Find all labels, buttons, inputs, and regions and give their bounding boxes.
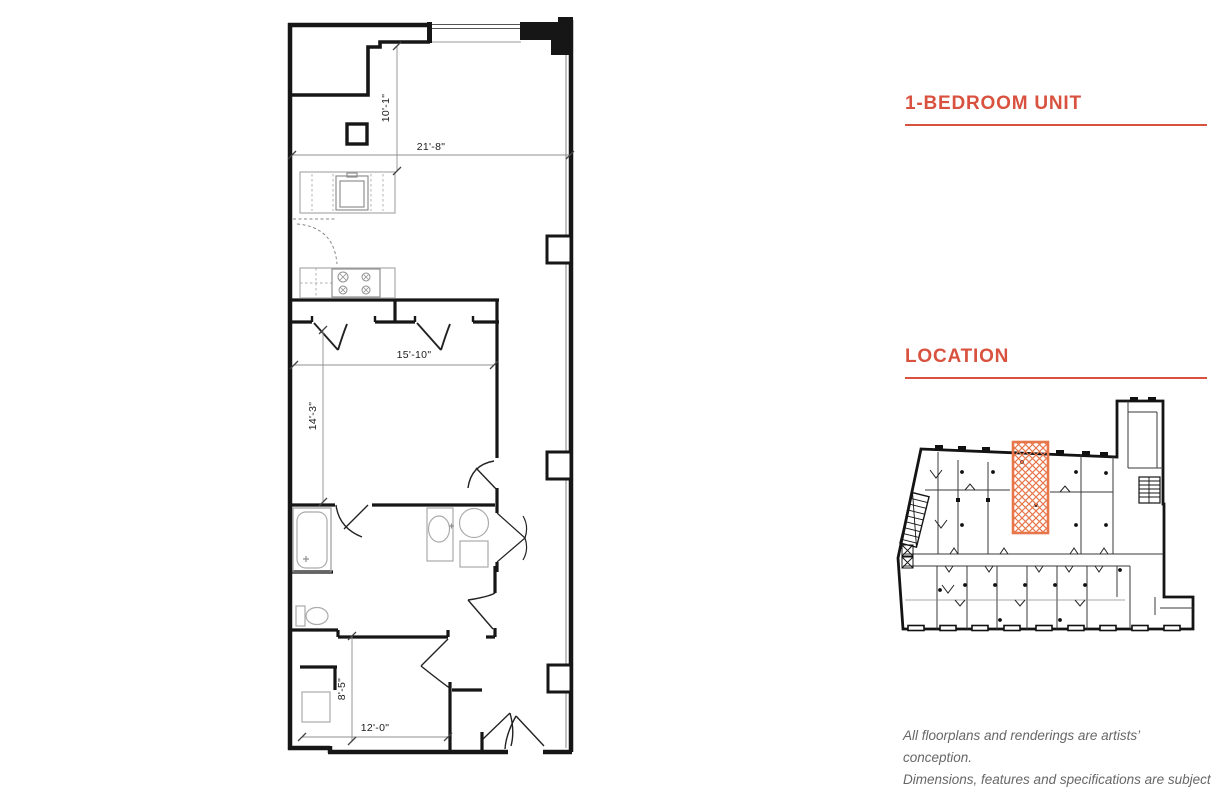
fixtures <box>293 172 489 722</box>
bathroom-door <box>336 505 368 537</box>
den-door <box>421 639 451 689</box>
entry-closet-door <box>483 713 513 746</box>
closet-bifold-left <box>314 323 347 350</box>
bedroom-door <box>468 461 497 490</box>
dryer <box>460 541 488 567</box>
unit-floorplan-drawing: 21'-8" 10'-1" 15'-10" 14'-3" 8'-5" 12'-0… <box>283 12 587 764</box>
toilet <box>296 606 305 626</box>
dimension-lines: 21'-8" 10'-1" 15'-10" 14'-3" 8'-5" 12'-0… <box>288 42 574 745</box>
dimension-label: 8'-5" <box>336 678 348 700</box>
disclaimer-text: All floorplans and renderings are artist… <box>903 725 1211 794</box>
hall-door <box>468 593 495 629</box>
kitchen-counter <box>300 268 395 298</box>
disclaimer-line: Dimensions, features and specifications … <box>903 769 1211 791</box>
bathroom-sink <box>429 516 450 542</box>
pantry-door <box>293 219 337 264</box>
desk <box>302 692 330 722</box>
interior-walls <box>288 124 571 750</box>
disclaimer-line: All floorplans and renderings are artist… <box>903 725 1211 769</box>
dimension-label: 21'-8" <box>417 141 446 153</box>
location-map <box>895 392 1199 640</box>
dimension-label: 14'-3" <box>307 402 319 431</box>
location-section-title: LOCATION <box>905 346 1207 379</box>
disclaimer-line: to change at the discretion of the build… <box>903 791 1211 794</box>
highlighted-unit <box>1013 442 1048 533</box>
column <box>347 124 367 144</box>
bottom-windows <box>908 626 1180 631</box>
laundry-doors <box>497 513 527 562</box>
dimension-label: 15'-10" <box>397 349 432 361</box>
floorplan-page: 21'-8" 10'-1" 15'-10" 14'-3" 8'-5" 12'-0… <box>0 0 1228 794</box>
closet-bifold-right <box>417 323 450 350</box>
washer <box>460 509 489 538</box>
dimension-label: 12'-0" <box>361 722 390 734</box>
unit-section-title: 1-BEDROOM UNIT <box>905 93 1207 126</box>
dimension-label: 10'-1" <box>380 94 392 123</box>
bathtub <box>293 508 331 572</box>
outer-walls <box>288 17 573 753</box>
